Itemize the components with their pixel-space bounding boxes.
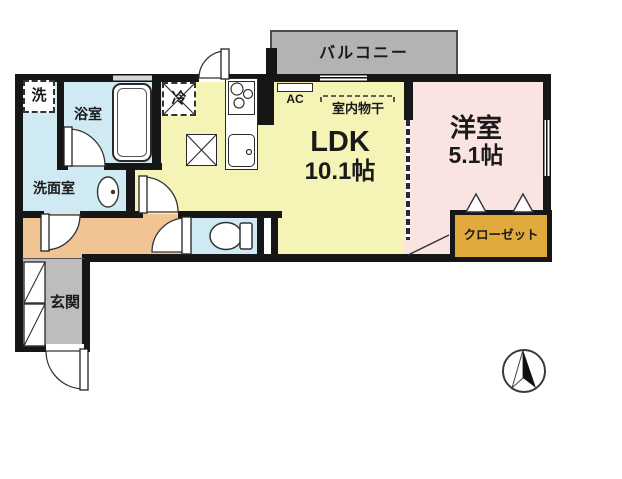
washer-label: 洗 [31,88,46,105]
wall-partition-top [404,74,413,120]
wall-bath-bottom-a [57,163,68,170]
ac-label: AC [277,93,313,106]
floorplan: バルコニー 洗 クローゼット [0,0,622,479]
bathroom-label: 浴室 [66,107,110,122]
wall-top [15,74,551,82]
north-arrow-icon [503,350,545,392]
kitchen-sink-icon [228,134,255,167]
wall-bath-right [152,74,161,170]
bathtub-icon [112,83,152,162]
wall-kitchen-stub [258,74,274,125]
stove-icon [228,81,255,115]
sliding-partition [406,120,410,240]
entrance-step-line [22,258,84,259]
closet-floor: クローゼット [455,215,547,257]
wall-toilet-right-a [257,214,264,258]
wall-washroom-right [126,166,135,218]
closet-label: クローゼット [463,229,538,243]
balcony-area: バルコニー [270,30,458,77]
ldk-area-label: 10.1帖 [278,159,402,185]
entrance-door-opening [46,344,84,352]
western-label-block: 洋室 5.1帖 [428,114,524,168]
wall-toilet-right-b [271,214,278,258]
closet-box: クローゼット [450,210,552,262]
wall-mid-1 [15,211,44,218]
room-toilet [191,216,259,256]
western-area-label: 5.1帖 [428,143,524,168]
pipe-space-gap [264,218,271,254]
ac-unit-box [277,83,313,92]
counter-hatch [186,134,217,166]
washroom-label: 洗面室 [22,181,86,196]
fridge-label: 冷 [162,82,196,116]
entrance-label: 玄関 [45,295,85,312]
indoor-drying-label: 室内物干 [313,102,403,116]
western-name-label: 洋室 [428,114,524,143]
wall-balcony-stub [266,48,277,75]
bathroom-window [113,74,152,82]
ldk-label-block: LDK 10.1帖 [278,127,402,185]
door-leaf-entrance [80,349,88,390]
western-room-window [543,120,551,176]
balcony-window [320,74,367,82]
balcony-label: バルコニー [319,45,409,63]
hallway [20,214,185,258]
door-arc-entrance [46,351,84,389]
wall-bath-left [57,74,64,170]
ldk-name-label: LDK [278,127,402,159]
kitchen-door-opening [199,74,227,82]
wall-mid-3 [178,211,282,218]
washer-box: 洗 [23,80,55,113]
